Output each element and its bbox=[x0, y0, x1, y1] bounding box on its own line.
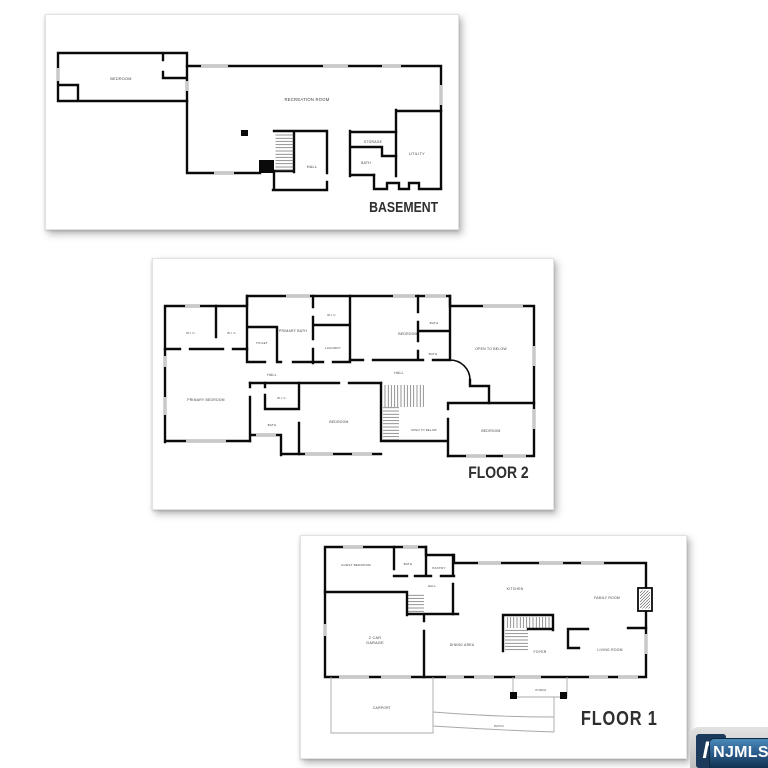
floor1-foyer-living-walls bbox=[568, 628, 646, 648]
floor2-panel: W.I.C. W.I.C. TOILET PRIMARY BATH W.I.C.… bbox=[152, 258, 554, 510]
room-label-primary-bedroom: PRIMARY BEDROOM bbox=[187, 398, 225, 402]
basement-post bbox=[241, 130, 248, 136]
njmls-logo: NJMLS bbox=[709, 738, 768, 768]
room-label-bedroom-mid: BEDROOM bbox=[329, 420, 348, 424]
floor2-title: FLOOR 2 bbox=[469, 463, 529, 483]
room-label-open-below-right: OPEN TO BELOW bbox=[475, 347, 507, 351]
basement-stairs bbox=[276, 134, 294, 171]
room-label-bath: BATH bbox=[361, 161, 371, 165]
room-label-bedroom: BEDROOM bbox=[110, 77, 131, 81]
floor1-garage-walls bbox=[325, 592, 458, 677]
floor2-midcolumn-walls bbox=[250, 383, 299, 455]
room-label-bath-left: BATH bbox=[268, 423, 277, 427]
room-label-toilet: TOILET bbox=[256, 341, 268, 345]
porch-post-left bbox=[510, 692, 517, 699]
floor1-outdoor-outlines bbox=[331, 677, 567, 733]
floor2-topbedroom-walls bbox=[350, 296, 450, 360]
basement-chimney bbox=[259, 160, 274, 173]
fireplace-icon bbox=[638, 588, 652, 611]
room-label-foyer: FOYER bbox=[534, 650, 547, 654]
floor2-closet-walls bbox=[470, 380, 489, 403]
njmls-watermark: N NJMLS bbox=[690, 727, 768, 768]
basement-windows bbox=[57, 65, 442, 174]
room-label-bath: BATH bbox=[404, 562, 413, 566]
room-label-patio: PATIO bbox=[494, 724, 504, 728]
room-label-wic4: W.I.C. bbox=[277, 396, 287, 400]
basement-recreation-walls bbox=[187, 66, 441, 188]
room-label-kitchen: KITCHEN bbox=[507, 587, 524, 591]
basement-title: BASEMENT bbox=[369, 199, 438, 216]
room-label-utility: UTILITY bbox=[409, 152, 425, 156]
room-label-wic1: W.I.C. bbox=[186, 331, 196, 335]
room-label-wic3: W.I.C. bbox=[327, 313, 337, 317]
basement-floorplan: BEDROOM RECREATION ROOM HALL STORAGE BAT… bbox=[46, 15, 458, 229]
room-label-dining: DINING AREA bbox=[450, 643, 475, 647]
room-label-carport: CARPORT bbox=[373, 706, 391, 710]
room-label-porch: PORCH bbox=[536, 688, 547, 692]
room-label-open-below-stairs: OPEN TO BELOW bbox=[411, 428, 437, 432]
room-label-wic2: W.I.C. bbox=[227, 331, 237, 335]
floor1-title: FLOOR 1 bbox=[581, 708, 658, 731]
room-label-primary-bath: PRIMARY BATH bbox=[279, 329, 307, 333]
basement-utility-walls bbox=[374, 110, 441, 189]
room-label-hall: HALL bbox=[428, 584, 437, 588]
porch-post-right bbox=[560, 692, 567, 699]
page: BEDROOM RECREATION ROOM HALL STORAGE BAT… bbox=[0, 0, 768, 768]
room-label-bedroom-top: BEDROOM bbox=[398, 332, 417, 336]
room-label-garage-line2: GARAGE bbox=[366, 641, 384, 645]
floor1-panel: GUEST BEDROOM BATH PANTRY HALL KITCHEN F… bbox=[300, 535, 687, 759]
room-label-garage-line1: 2 CAR bbox=[369, 636, 381, 640]
room-label-living: LIVING ROOM bbox=[597, 648, 622, 652]
room-label-hall: HALL bbox=[307, 165, 318, 169]
room-label-bath-mid: BATH bbox=[429, 352, 438, 356]
floor2-stairs-lower-run bbox=[383, 407, 399, 440]
floor1-outer-walls bbox=[325, 547, 646, 677]
basement-storage-bath-walls bbox=[350, 131, 396, 176]
room-label-bath-top: BATH bbox=[430, 321, 439, 325]
room-label-hall-left: HALL bbox=[267, 373, 276, 377]
basement-panel: BEDROOM RECREATION ROOM HALL STORAGE BAT… bbox=[45, 14, 459, 230]
floor1-windows bbox=[324, 546, 647, 678]
floor1-stairs-upper-run bbox=[505, 617, 551, 628]
room-label-storage: STORAGE bbox=[364, 140, 383, 144]
floor2-stairs-upper-run bbox=[383, 385, 424, 407]
floor2-wic-block-walls bbox=[165, 306, 247, 349]
room-label-recreation: RECREATION ROOM bbox=[284, 97, 329, 102]
floor2-curved-wall bbox=[450, 360, 470, 380]
room-label-pantry: PANTRY bbox=[432, 566, 445, 570]
floor1-garage-stairs bbox=[408, 594, 424, 614]
room-label-bedroom-right: BEDROOM bbox=[481, 429, 500, 433]
room-label-family-room: FAMILY ROOM bbox=[594, 596, 620, 600]
floor1-stairs-lower-run bbox=[505, 629, 528, 651]
room-label-laundry: LAUNDRY bbox=[325, 346, 341, 350]
room-label-hall-right: HALL bbox=[394, 371, 403, 375]
room-label-guest-bedroom: GUEST BEDROOM bbox=[341, 563, 371, 567]
